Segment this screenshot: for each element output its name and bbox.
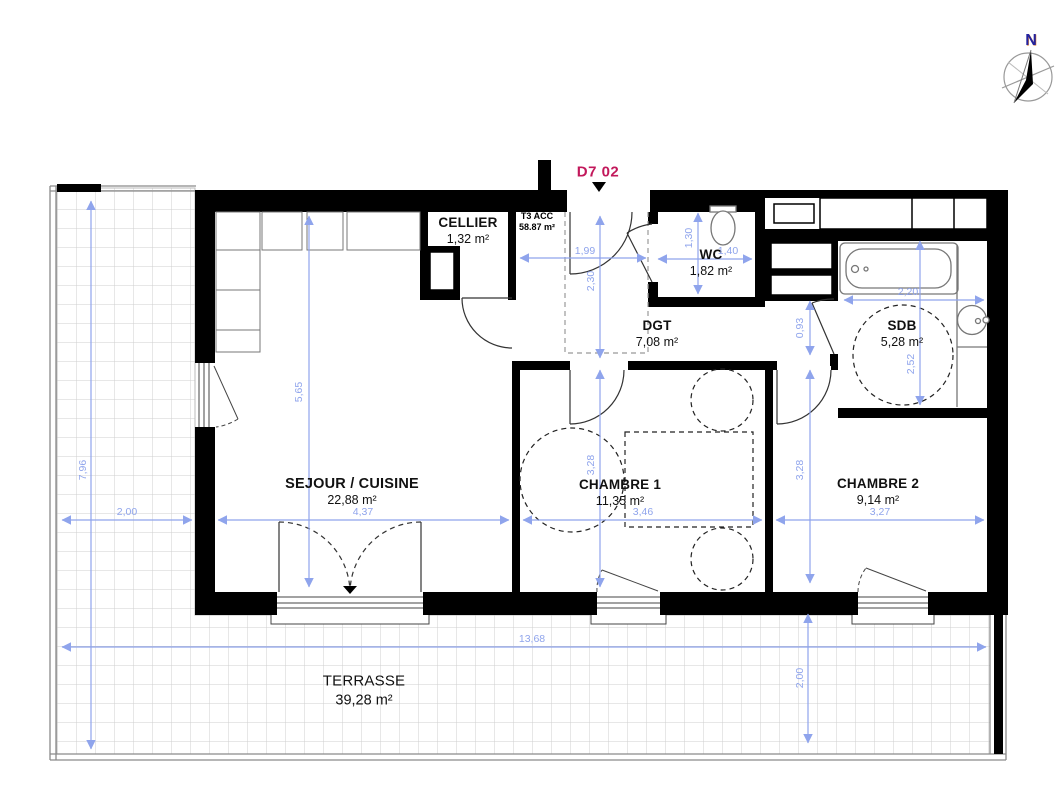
dim-wc-width: 1,40 bbox=[718, 245, 738, 257]
dim-entry-depth: 2,30 bbox=[585, 271, 597, 291]
unit-id-label: D7 02 bbox=[577, 164, 620, 181]
room-label-dgt: DGT 7,08 m² bbox=[636, 318, 678, 351]
room-label-cellier: CELLIER 1,32 m² bbox=[438, 215, 497, 248]
room-label-sejour: SEJOUR / CUISINE 22,88 m² bbox=[285, 475, 419, 509]
dim-entry-width: 1,99 bbox=[575, 245, 595, 257]
floor-plan-drawing bbox=[0, 0, 1060, 800]
dim-chambre2-height: 3,28 bbox=[794, 460, 806, 480]
dim-wc-height: 1,30 bbox=[683, 228, 695, 248]
floor-plan: D7 02 T3 ACC 58.87 m² N CELLIER 1,32 m² … bbox=[0, 0, 1060, 800]
room-label-chambre1: CHAMBRE 1 11,35 m² bbox=[579, 477, 661, 510]
room-label-sdb: SDB 5,28 m² bbox=[881, 318, 923, 351]
unit-type-label: T3 ACC 58.87 m² bbox=[519, 211, 555, 233]
dim-terrace-width: 2,00 bbox=[117, 506, 137, 518]
dim-sdb-door-offset: 0,93 bbox=[794, 318, 806, 338]
dim-chambre2-width: 3,27 bbox=[870, 506, 890, 518]
dim-terrace-length: 13,68 bbox=[519, 633, 545, 645]
north-compass-icon bbox=[1002, 50, 1054, 103]
room-label-chambre2: CHAMBRE 2 9,14 m² bbox=[837, 476, 919, 509]
dim-terrace-height: 7,96 bbox=[77, 460, 89, 480]
dim-sdb-height: 2,52 bbox=[905, 354, 917, 374]
north-label: N bbox=[1025, 32, 1037, 50]
dim-chambre1-height: 3,28 bbox=[585, 455, 597, 475]
dim-sdb-width: 2,20 bbox=[898, 286, 918, 298]
kitchen-counters bbox=[216, 212, 420, 352]
dim-chambre1-width: 3,46 bbox=[633, 506, 653, 518]
washbasin bbox=[957, 245, 989, 407]
terrace-divider-top bbox=[57, 184, 101, 192]
unit-total-area: 58.87 m² bbox=[519, 222, 555, 233]
terrace-divider-right bbox=[994, 613, 1003, 754]
unit-type: T3 ACC bbox=[519, 211, 555, 222]
dim-terrace-depth: 2,00 bbox=[794, 668, 806, 688]
dim-sejour-height: 5,65 bbox=[293, 382, 305, 402]
french-door bbox=[279, 522, 421, 594]
dim-sejour-width: 4,37 bbox=[353, 506, 373, 518]
toilet bbox=[710, 206, 736, 245]
room-label-terrasse: TERRASSE 39,28 m² bbox=[323, 673, 405, 710]
entrance-arrow-icon bbox=[592, 182, 606, 192]
